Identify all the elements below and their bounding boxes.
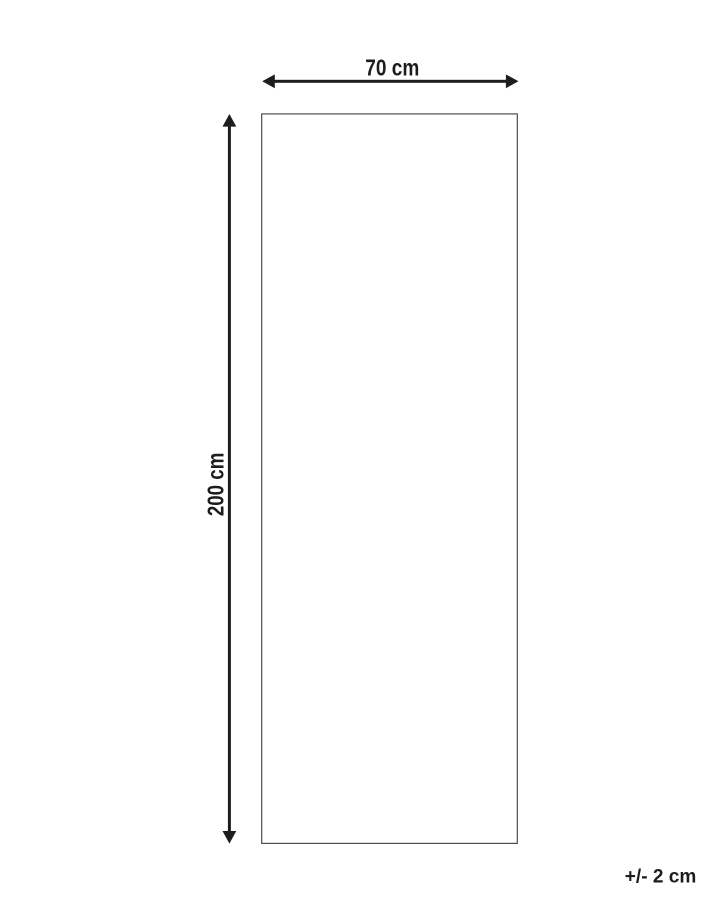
svg-text:200 cm: 200 cm bbox=[203, 453, 229, 517]
svg-text:70 cm: 70 cm bbox=[365, 55, 419, 81]
svg-text:+/- 2 cm: +/- 2 cm bbox=[625, 866, 697, 887]
